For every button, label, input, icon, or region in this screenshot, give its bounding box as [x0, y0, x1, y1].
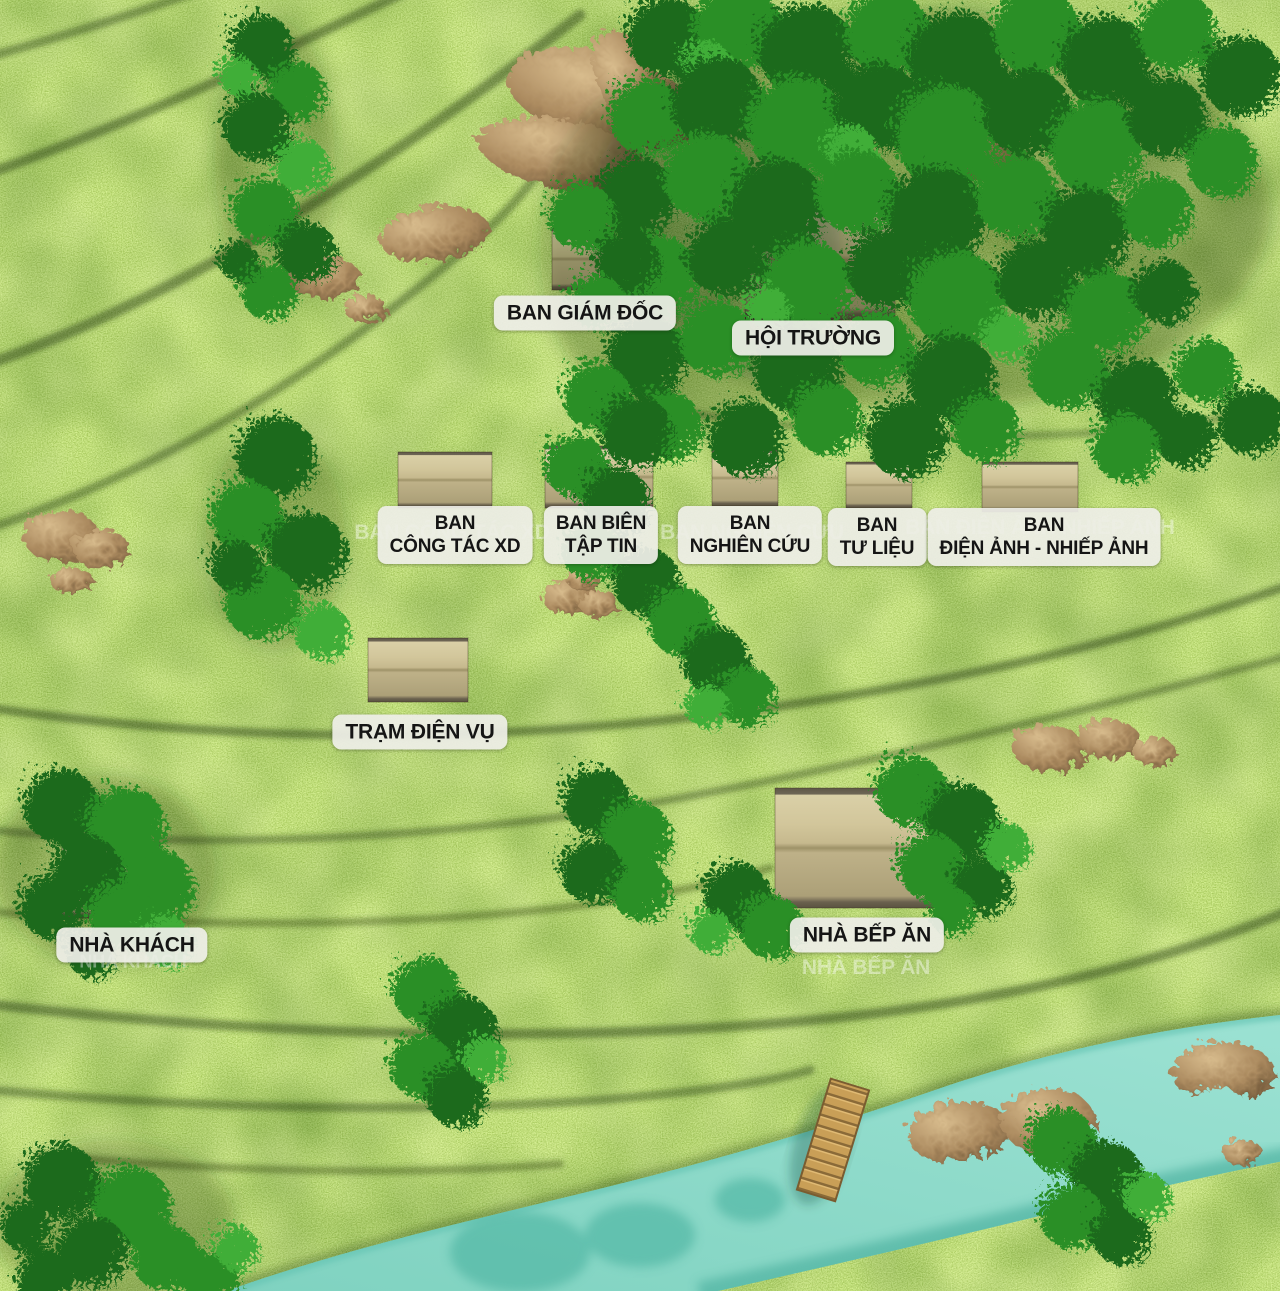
site-plan-map: BAN CÔNG TÁC XD BAN NGHIÊN CỨU BAN ĐIỆN … [0, 0, 1280, 1291]
label-text: BAN [840, 514, 915, 537]
label-ban-tu-lieu: BAN TƯ LIỆU [828, 508, 927, 566]
label-text: BAN [690, 512, 810, 535]
label-text: NHÀ BẾP ĂN [803, 923, 931, 948]
label-text: BAN BIÊN [556, 512, 646, 535]
label-text: ĐIỆN ẢNH - NHIẾP ẢNH [940, 537, 1149, 560]
terrain-render [0, 0, 1280, 1291]
building-ban-cong-tac-xd [398, 452, 492, 508]
label-text: NHÀ KHÁCH [69, 933, 194, 958]
label-nha-khach: NHÀ KHÁCH [56, 928, 207, 963]
label-text: NGHIÊN CỨU [690, 535, 810, 558]
label-ban-dien-anh: BAN ĐIỆN ẢNH - NHIẾP ẢNH [928, 508, 1161, 566]
label-text: BAN [390, 512, 521, 535]
label-ban-nghien-cuu: BAN NGHIÊN CỨU [678, 506, 822, 564]
label-text: HỘI TRƯỜNG [745, 326, 881, 351]
label-nha-bep-an: NHÀ BẾP ĂN [790, 918, 944, 953]
label-hoi-truong: HỘI TRƯỜNG [732, 321, 894, 356]
ghost-label-nha-bep-an: NHÀ BẾP ĂN [802, 956, 930, 980]
label-text: TẬP TIN [556, 535, 646, 558]
label-ban-giam-doc: BAN GIÁM ĐỐC [494, 296, 676, 331]
label-ban-bien-tap-tin: BAN BIÊN TẬP TIN [544, 506, 658, 564]
label-text: BAN [940, 514, 1149, 537]
label-text: BAN GIÁM ĐỐC [507, 301, 663, 326]
building-ban-dien-anh [982, 462, 1078, 512]
label-text: TRẠM ĐIỆN VỤ [345, 720, 494, 745]
label-tram-dien-vu: TRẠM ĐIỆN VỤ [332, 715, 507, 750]
building-tram-dien-vu [368, 638, 468, 702]
label-text: TƯ LIỆU [840, 537, 915, 560]
label-ban-cong-tac-xd: BAN CÔNG TÁC XD [378, 506, 533, 564]
label-text: CÔNG TÁC XD [390, 535, 521, 558]
